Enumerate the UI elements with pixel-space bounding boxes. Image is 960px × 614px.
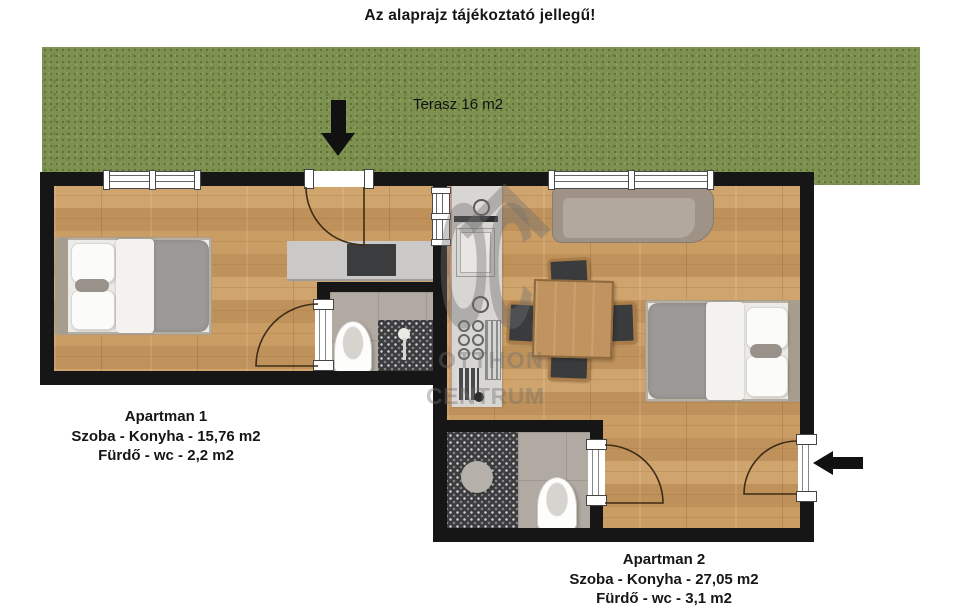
terrace-label: Terasz 16 m2 — [413, 96, 503, 113]
sofa-apartment2 — [552, 186, 714, 243]
disclaimer-title: Az alaprajz tájékoztató jellegű! — [0, 7, 960, 25]
apartment2-name: Apartman 2 — [514, 550, 814, 570]
bolster-pillow — [750, 344, 782, 358]
wall-left-apartment1 — [40, 172, 54, 385]
apartment1-bath: Fürdő - wc - 2,2 m2 — [16, 446, 316, 466]
sofa-seat — [563, 198, 695, 238]
shower-apartment2 — [447, 432, 518, 529]
bed-apartment2 — [645, 300, 801, 402]
stove-knob — [472, 320, 484, 332]
terrace-entrance-arrow-down-head — [321, 133, 355, 156]
drain-dot — [474, 392, 484, 402]
faucet-icon — [472, 296, 489, 313]
pillow — [71, 243, 115, 283]
apartment2-label: Apartman 2 Szoba - Konyha - 27,05 m2 Für… — [514, 550, 814, 609]
toilet-apartment1 — [334, 321, 372, 373]
shower-apartment1 — [378, 320, 433, 372]
toilet-apartment2 — [537, 477, 577, 530]
wall-left-apartment2 — [433, 385, 447, 542]
bed-headboard — [56, 238, 68, 334]
window-apartment2 — [549, 171, 713, 189]
dining-table — [532, 279, 614, 359]
apartment1-area: Szoba - Konyha - 15,76 m2 — [16, 427, 316, 447]
stove-knob — [458, 348, 470, 360]
apartment1-name: Apartman 1 — [16, 407, 316, 427]
window-divider-wall — [432, 188, 450, 245]
entrance-arrow-left-head — [813, 451, 833, 475]
pillow — [71, 290, 115, 330]
bed-sheet — [116, 239, 154, 333]
terrace-door-apartment1 — [306, 171, 372, 187]
pillow — [746, 355, 788, 397]
apartment2-bath: Fürdő - wc - 3,1 m2 — [514, 589, 814, 609]
bathroom-door-apartment2 — [588, 441, 605, 504]
terrace-entrance-arrow-down-icon — [331, 100, 346, 134]
window-apartment1 — [104, 171, 200, 189]
apartment1-label: Apartman 1 Szoba - Konyha - 15,76 m2 Für… — [16, 407, 316, 466]
terrace-grass — [42, 47, 920, 185]
stove-knob — [472, 348, 484, 360]
stove-knob — [458, 334, 470, 346]
wall-bathroom1-top — [317, 282, 447, 292]
bathroom-door-apartment1 — [315, 301, 332, 369]
bed-apartment1 — [55, 237, 212, 335]
entrance-arrow-left-icon — [832, 457, 863, 469]
stove-knob — [472, 334, 484, 346]
kitchen-counter-apartment1 — [287, 241, 433, 281]
bed-headboard — [788, 301, 800, 401]
shower-drain-icon — [461, 461, 493, 493]
pillow — [746, 307, 788, 349]
shower-hose — [403, 338, 406, 360]
stove-knob — [458, 320, 470, 332]
wall-bottom-apartment2 — [433, 528, 814, 542]
wall-bathroom2-top — [433, 420, 603, 432]
bed-sheet — [706, 302, 744, 400]
wall-bottom-apartment1 — [40, 371, 447, 385]
bolster-pillow — [75, 279, 109, 292]
dish-rack — [485, 320, 501, 380]
cooktop-apartment1 — [347, 244, 396, 276]
apartment2-area: Szoba - Konyha - 27,05 m2 — [514, 570, 814, 590]
floorplan: Az alaprajz tájékoztató jellegű! Terasz … — [0, 0, 960, 614]
